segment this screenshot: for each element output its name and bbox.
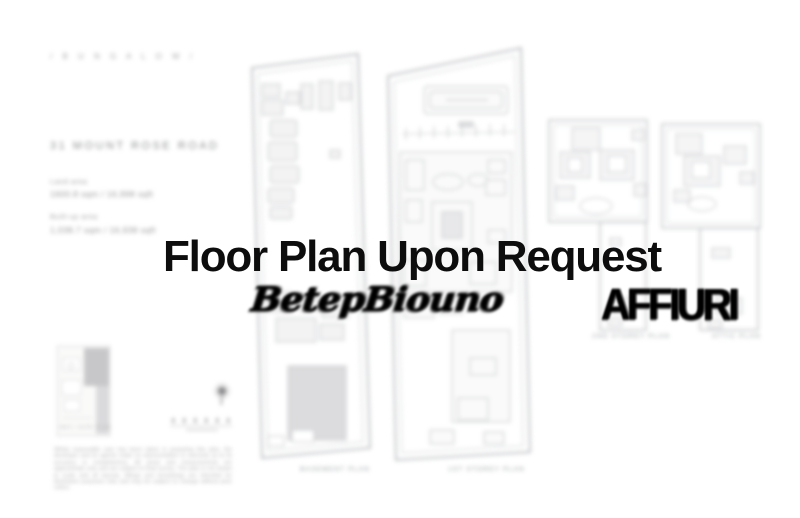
smudged-signature-watermark: BetepBiouno [249, 280, 505, 319]
north-arrow-icon [215, 384, 229, 405]
agency-watermark: AFFIURI [601, 278, 736, 330]
caption-first-storey-plan: 1ST STOREY PLAN [448, 466, 525, 473]
disclaimer-text: Whilst reasonable care has been taken in… [54, 447, 232, 492]
caption-second-storey-plan: 2ND STOREY PLAN [592, 333, 670, 340]
site-plan-thumbnail [57, 346, 110, 436]
scale-bar [170, 418, 232, 431]
caption-attic-plan: ATTIC PLAN [712, 333, 761, 340]
brochure-page: / B U N G A L O W / 31 MOUNT ROSE ROAD L… [0, 0, 800, 518]
site-thumb-caption: KEY / SITE PLAN [60, 425, 112, 431]
caption-basement-plan: BASEMENT PLAN [300, 466, 370, 473]
floor-plan-upon-request-title: Floor Plan Upon Request [163, 232, 663, 282]
